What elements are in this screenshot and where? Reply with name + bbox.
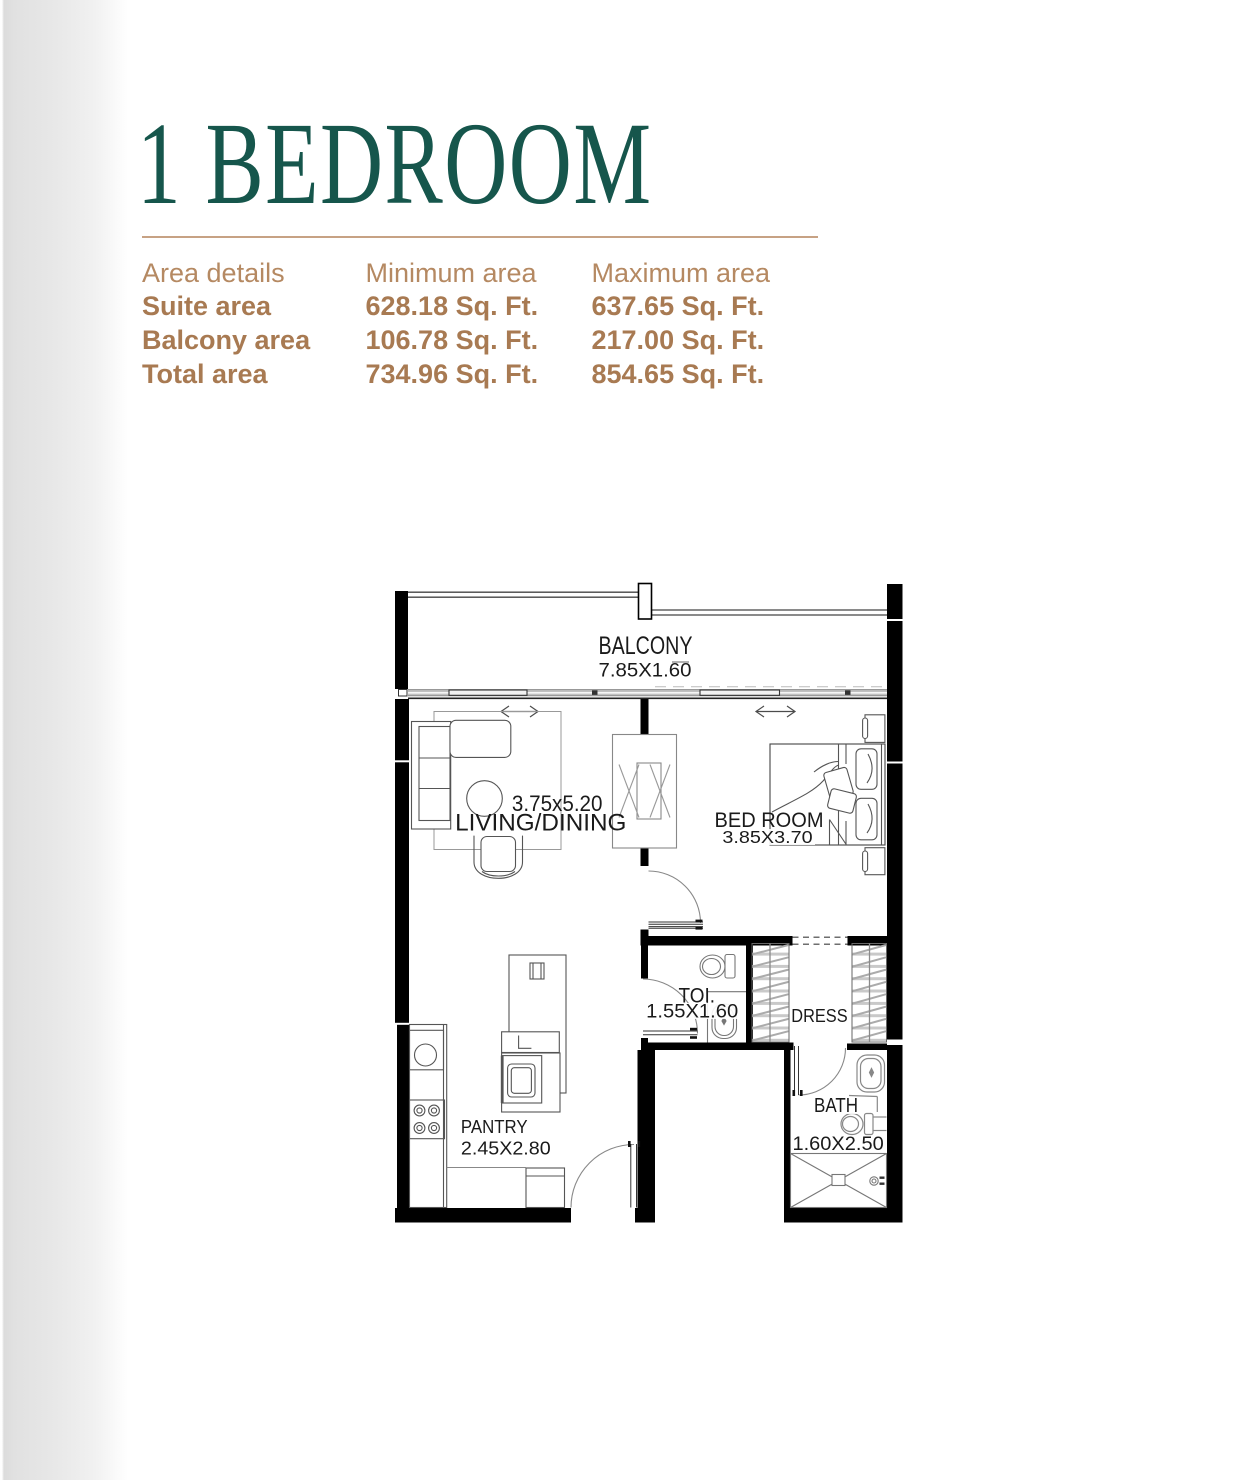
svg-text:BATH: BATH <box>814 1095 858 1117</box>
svg-text:1.60X2.50: 1.60X2.50 <box>793 1134 884 1155</box>
svg-text:LIVING/DINING: LIVING/DINING <box>455 810 626 837</box>
svg-text:2.45X2.80: 2.45X2.80 <box>461 1139 551 1159</box>
svg-text:1.55X1.60: 1.55X1.60 <box>646 1002 738 1023</box>
svg-text:BALCONY: BALCONY <box>599 632 693 660</box>
svg-text:PANTRY: PANTRY <box>461 1117 528 1138</box>
svg-text:3.85X3.70: 3.85X3.70 <box>722 827 812 847</box>
svg-text:7.85X1.60: 7.85X1.60 <box>599 661 692 682</box>
svg-text:DRESS: DRESS <box>791 1006 847 1026</box>
